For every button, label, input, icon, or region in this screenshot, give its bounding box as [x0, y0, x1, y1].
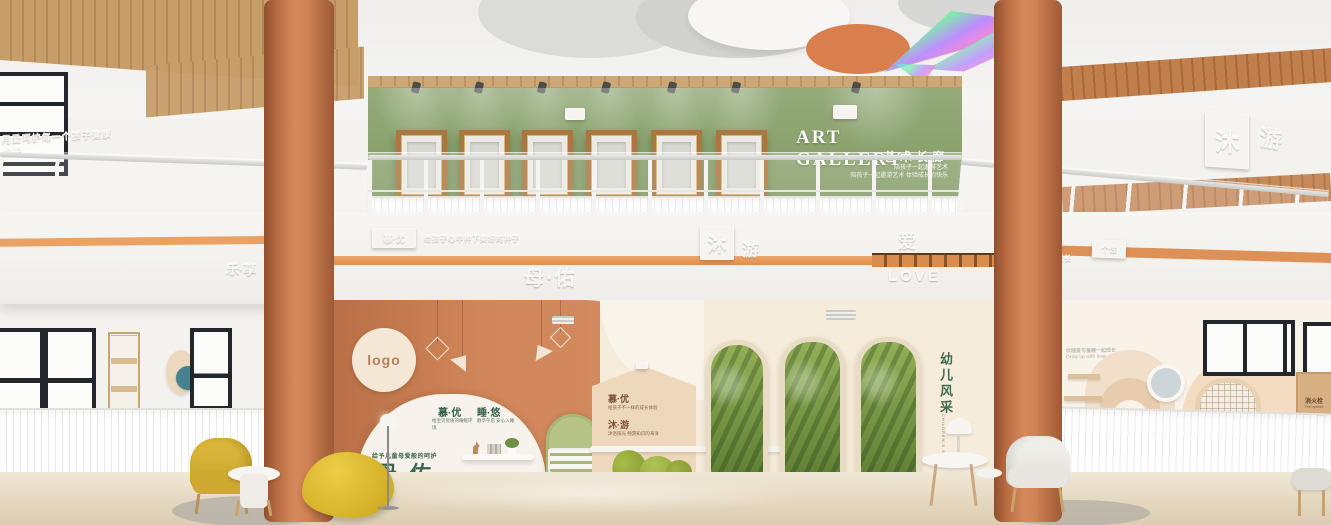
fascia-love-en: LOVE: [888, 268, 941, 285]
wall-control-panel: [833, 105, 857, 119]
plant-leaves: [505, 438, 519, 448]
wall-vent: [826, 310, 856, 320]
fascia-left-chars: 乐·享: [226, 259, 256, 278]
porthole-mirror: [1147, 364, 1185, 402]
fascia-left-plaque: 慕·优: [372, 228, 416, 248]
fascia-center-plaque-mu: 沐: [700, 226, 734, 260]
sleep-sign-h1: 慕·优: [438, 404, 461, 419]
upper-right-plaque-mu: 沐: [1205, 110, 1249, 169]
display-shelf: [462, 454, 534, 460]
stool-small: [976, 468, 1002, 478]
upper-right-char-you: 游: [1259, 121, 1282, 156]
floor-lamp-base: [377, 506, 399, 510]
arched-jungle-window: [706, 340, 768, 490]
wall-shelf-wood: [1064, 396, 1102, 401]
house-sign-p2: 沐浴阳光 畅游知识的海洋: [608, 431, 688, 437]
fascia-right-plaque: 个性: [1092, 239, 1127, 258]
logo-circle: logo: [352, 328, 416, 392]
arched-jungle-window: [856, 337, 921, 492]
floor-sheen: [380, 474, 800, 514]
house-sign-clip: [636, 362, 648, 369]
lobby-scene: 用爱呵护每一个孩子健康成长 ART GALLERY 艺术长廊 陪孩子一起遨游艺术…: [0, 0, 1331, 525]
kids-corner-title: 幼儿风采: [936, 352, 955, 416]
sleep-sign-p1: 给宝贝优质的睡眠环境: [432, 418, 476, 431]
books-stack: [487, 444, 501, 454]
plaque-char: 沐: [707, 230, 726, 257]
railing-center: [368, 150, 962, 216]
wall-shelf-wood: [1068, 374, 1100, 379]
sleep-sign-h2: 睡·悠: [477, 404, 500, 419]
reading-table-top: [922, 452, 988, 468]
chair-leg: [1322, 490, 1325, 516]
fascia-center-char-you: 游: [742, 236, 760, 262]
logo-text: logo: [367, 352, 401, 368]
house-sign-p1: 给孩子不一样的成长体验: [608, 405, 688, 411]
ornament-wire: [541, 300, 542, 348]
chair-leg: [1298, 490, 1301, 516]
floor-lamp-pole: [387, 426, 389, 508]
ground-left-window-2: [190, 328, 232, 410]
column-left: [264, 0, 334, 522]
plaque-label: 慕·优: [384, 232, 405, 245]
fire-sign-title: 消火栓: [1301, 396, 1327, 405]
white-slat-unit: [548, 448, 598, 474]
fascia-orange-stripe-center: [332, 256, 872, 265]
sleep-sign-p2: 静享午后 安心入睡: [477, 418, 521, 425]
wall-vent: [552, 316, 574, 324]
plaque-char: 沐: [1215, 122, 1239, 159]
fascia-left-tagline: 给孩子心中种下美好的种子: [424, 234, 564, 244]
upper-right-ground-window-1: [1203, 320, 1295, 376]
gallery-wood-trim: [368, 76, 962, 87]
wall-control-panel: [565, 108, 585, 120]
fascia-brand-name: 母·佑: [524, 262, 577, 291]
arched-jungle-window: [780, 337, 845, 492]
armchair-white-seat: [1008, 466, 1068, 488]
ground-left-window-1: [0, 328, 96, 418]
house-sign-h2: 沐·游: [608, 418, 629, 431]
stool-grey: [1292, 468, 1331, 490]
plaque-label: 个性: [1101, 243, 1117, 255]
ornament-wire: [462, 300, 463, 356]
house-sign-h1: 慕·优: [608, 392, 629, 405]
side-table-white-body: [240, 474, 268, 508]
fascia-love-char: 爱: [898, 228, 916, 254]
right-wall-tagline-2: Grow up with love: [1066, 354, 1106, 361]
fire-sign-sub: Fire hydrant: [1301, 405, 1327, 409]
